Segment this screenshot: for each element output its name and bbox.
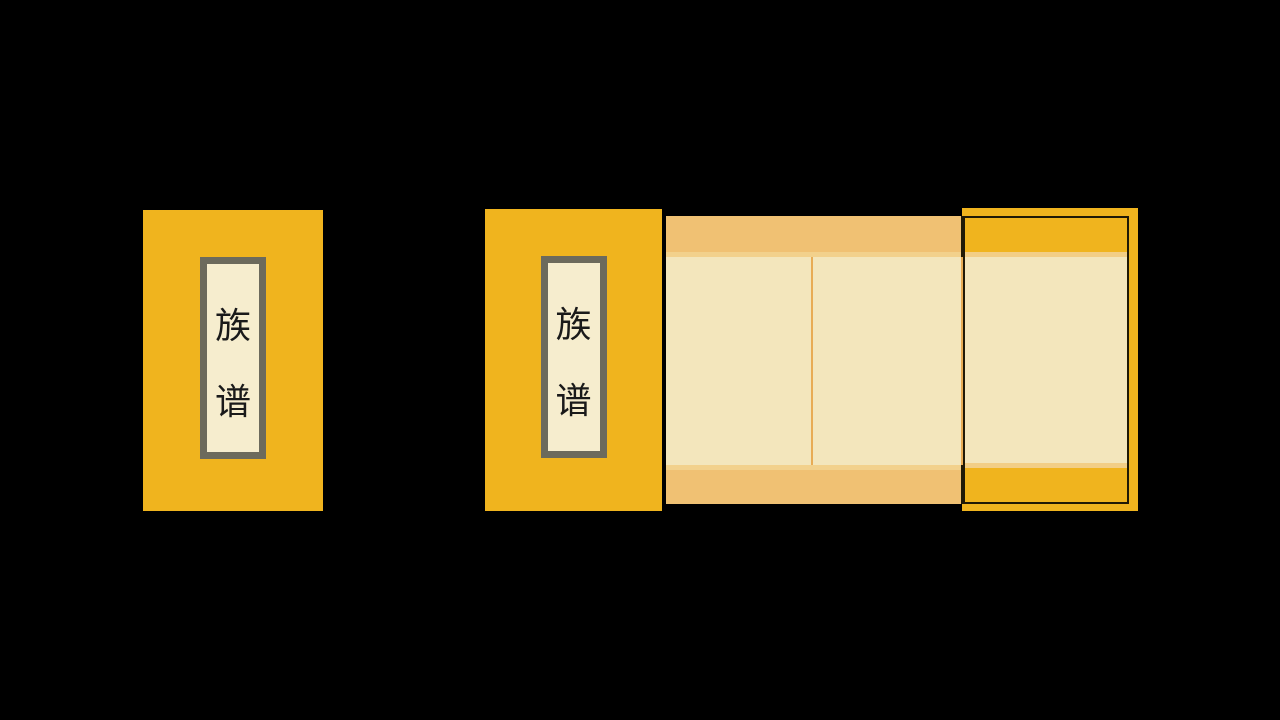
closed-book-title-label: 族 谱: [200, 257, 266, 459]
title-char-zu: 族: [215, 308, 251, 344]
page-panel-last-outlined: [963, 216, 1129, 504]
page-2-bottom-band: [813, 470, 961, 504]
page-2-body: [813, 257, 961, 465]
page-1-bottom-band: [666, 470, 811, 504]
open-book-front-cover: 族 谱: [485, 209, 662, 511]
page-2-top-band: [813, 216, 961, 252]
last-page-body: [965, 257, 1127, 463]
page-1-top-band: [666, 216, 811, 252]
last-page-bottom-band: [965, 468, 1127, 502]
title-char-zu: 族: [555, 307, 591, 343]
last-page-top-band: [965, 218, 1127, 252]
open-book-pages: [666, 216, 1129, 504]
slide-canvas: 族 谱: [0, 0, 1280, 720]
closed-genealogy-book-cover: 族 谱: [143, 210, 323, 511]
title-char-pu: 谱: [555, 383, 591, 419]
page-panel-2: [813, 216, 961, 504]
title-char-pu: 谱: [215, 384, 251, 420]
page-1-body: [666, 257, 811, 465]
page-panel-1: [666, 216, 811, 504]
open-book-title-label: 族 谱: [541, 256, 607, 458]
